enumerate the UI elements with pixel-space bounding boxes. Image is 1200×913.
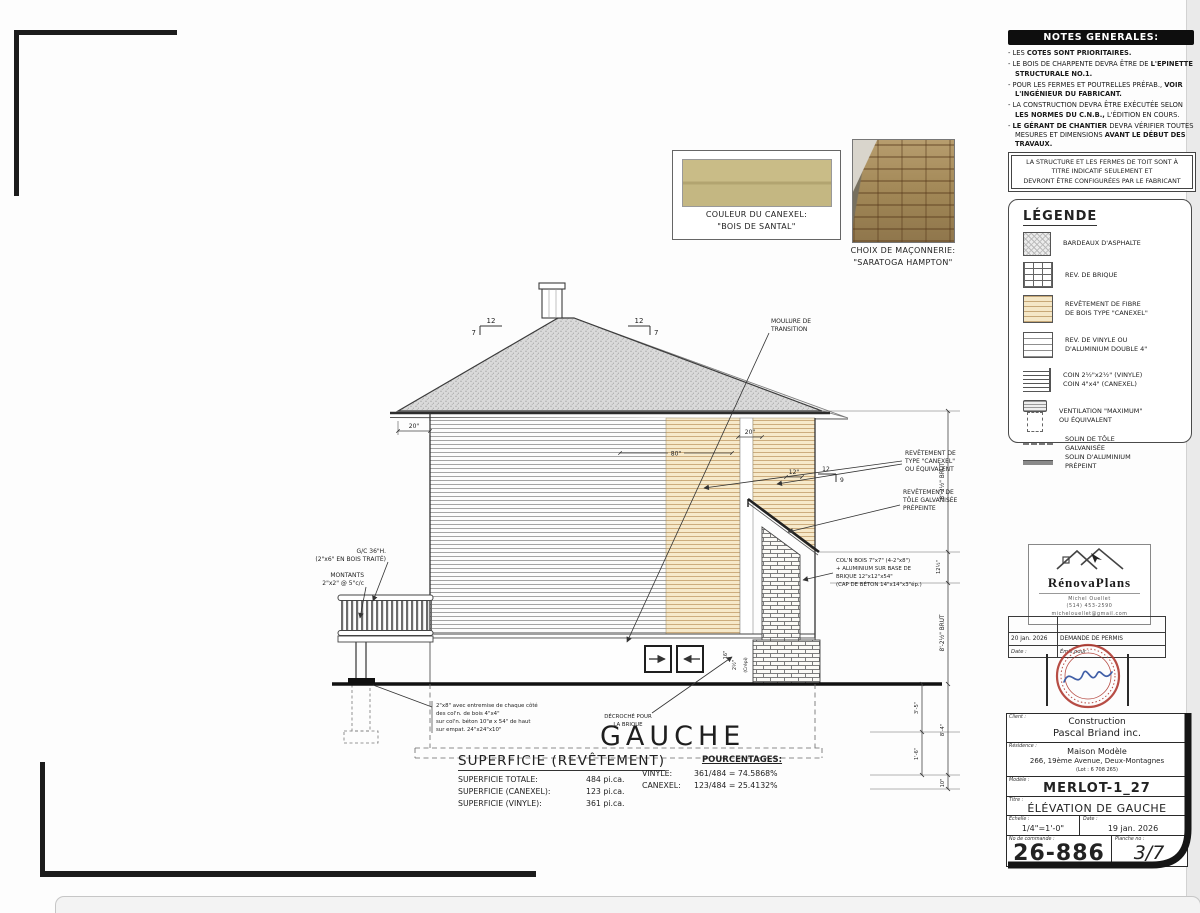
svg-text:sur col'n. béton 10"ø x 54" de: sur col'n. béton 10"ø x 54" de haut <box>436 718 531 725</box>
svg-text:12½": 12½" <box>935 560 942 574</box>
svg-text:REVÊTEMENT DE: REVÊTEMENT DE <box>905 449 956 457</box>
svg-text:REVÊTEMENT DE: REVÊTEMENT DE <box>903 488 954 496</box>
legend-item-dash: SOLIN DE TÔLEGALVANISÉE <box>1023 435 1191 453</box>
legend-item-corner: COIN 2½"x2½" (VINYLE)COIN 4"x4" (CANEXEL… <box>1023 363 1191 397</box>
svg-text:(CAP DE BÉTON 14"x14"x3"ép.): (CAP DE BÉTON 14"x14"x3"ép.) <box>836 580 922 588</box>
legend-item-brick: REV. DE BRIQUE <box>1023 259 1191 291</box>
renovaplans-name: RénovaPlans <box>1029 575 1150 591</box>
cursor-arrow-icon <box>1091 553 1102 563</box>
svg-text:20": 20" <box>745 429 756 436</box>
svg-text:7: 7 <box>472 329 476 337</box>
professional-stamp <box>1050 640 1126 712</box>
data-row: SUPERFICIE (VINYLE):361 pi.ca. <box>458 798 708 810</box>
svg-text:2½": 2½" <box>731 660 738 670</box>
canexel-color-swatch <box>682 159 832 207</box>
svg-text:(Crépi): (Crépi) <box>742 657 749 673</box>
legend-label: VENTILATION "MAXIMUM"OU ÉQUIVALENT <box>1059 407 1142 425</box>
horizontal-scrollbar[interactable] <box>55 896 1200 913</box>
svg-text:8'-4": 8'-4" <box>940 724 946 736</box>
deck <box>338 595 433 743</box>
svg-text:DÉCROCHÉ POUR: DÉCROCHÉ POUR <box>604 712 652 720</box>
renovaplans-roof-icon <box>1055 545 1125 571</box>
svg-text:3'-5": 3'-5" <box>914 702 920 714</box>
legend-item-canexel: REVÊTEMENT DE FIBREDE BOIS TYPE "CANEXEL… <box>1023 291 1191 327</box>
indicative-note-line: LA STRUCTURE ET LES FERMES DE TOIT SONT … <box>1013 158 1191 167</box>
svg-text:MOULURE DE: MOULURE DE <box>771 318 811 325</box>
legend-label: SOLIN D'ALUMINIUMPRÉPEINT <box>1065 453 1131 471</box>
renovaplans-contact-1: (514) 453-2590 <box>1029 603 1150 610</box>
vent-swatch-icon <box>1023 400 1047 432</box>
corner-mark-top-left <box>14 30 177 35</box>
superficie-title: SUPERFICIE (REVÊTEMENT) <box>458 753 665 771</box>
masonry-caption-1: CHOIX DE MAÇONNERIE: <box>818 246 988 255</box>
note-item: LES COTES SONT PRIORITAIRES. <box>1008 49 1194 58</box>
svg-text:2"x2" @ 5"c/c: 2"x2" @ 5"c/c <box>322 580 364 587</box>
svg-text:1'-6": 1'-6" <box>914 748 920 760</box>
pourcentages-title: POURCENTAGES: <box>642 755 842 765</box>
solid-swatch-icon <box>1023 460 1053 465</box>
svg-text:9: 9 <box>840 477 844 484</box>
legend-label: REV. DE BRIQUE <box>1065 271 1117 280</box>
dash-swatch-icon <box>1023 443 1053 445</box>
legend-title: LÉGENDE <box>1023 209 1097 226</box>
legend-label: COIN 2½"x2½" (VINYLE)COIN 4"x4" (CANEXEL… <box>1063 371 1142 389</box>
legend-label: REVÊTEMENT DE FIBREDE BOIS TYPE "CANEXEL… <box>1065 300 1148 318</box>
corner-swatch-icon <box>1023 368 1051 392</box>
svg-text:G/C 36"H.: G/C 36"H. <box>357 548 387 555</box>
svg-text:12: 12 <box>635 317 644 325</box>
seal-frame-left <box>1046 654 1048 706</box>
note-item: POUR LES FERMES ET POUTRELLES PRÉFAB., V… <box>1008 81 1194 100</box>
svg-text:TÔLE GALVANISÉE: TÔLE GALVANISÉE <box>902 496 958 504</box>
legend-panel: LÉGENDE BARDEAUX D'ASPHALTEREV. DE BRIQU… <box>1008 199 1192 443</box>
pourcentages-rows: VINYLE:361/484 = 74.5868%CANEXEL:123/484… <box>642 768 842 793</box>
pourcentages-block: POURCENTAGES: VINYLE:361/484 = 74.5868%C… <box>642 755 842 793</box>
masonry-photo <box>852 139 955 243</box>
legend-item-asphalt: BARDEAUX D'ASPHALTE <box>1023 228 1191 259</box>
note-item: LE GÉRANT DE CHANTIER DEVRA VÉRIFIER TOU… <box>1008 122 1194 150</box>
legend-label: REV. DE VINYLE OUD'ALUMINIUM DOUBLE 4" <box>1065 336 1147 354</box>
svg-text:20": 20" <box>409 423 420 430</box>
svg-text:TYPE "CANEXEL": TYPE "CANEXEL" <box>904 458 955 465</box>
svg-text:PRÉPEINTE: PRÉPEINTE <box>903 504 936 512</box>
svg-text:2"x8" avec entremise de chaque: 2"x8" avec entremise de chaque côté <box>436 702 538 709</box>
corner-mark-bottom-left <box>40 871 536 877</box>
canexel-color-swatch-box: COULEUR DU CANEXEL: "BOIS DE SANTAL" <box>672 150 841 240</box>
notes-header: NOTES GENERALES: <box>1008 30 1194 45</box>
brick-base <box>753 640 820 684</box>
corner-trim <box>740 418 753 634</box>
chimney <box>542 289 562 318</box>
plan-sheet: { "notes": { "header": "NOTES GENERALES:… <box>0 0 1200 913</box>
svg-text:8'-2½" BRUT: 8'-2½" BRUT <box>939 614 946 651</box>
seal-frame-right <box>1127 654 1129 706</box>
legend-label: BARDEAUX D'ASPHALTE <box>1063 239 1141 248</box>
roof <box>390 283 848 419</box>
svg-text:des col'n. de bois 4"x4": des col'n. de bois 4"x4" <box>436 711 500 717</box>
svg-text:80": 80" <box>671 451 682 458</box>
svg-text:COL'N BOIS 7"x7" (4-2"x8"): COL'N BOIS 7"x7" (4-2"x8") <box>836 558 910 564</box>
svg-text:BRIQUE 12"x12"x54": BRIQUE 12"x12"x54" <box>836 574 893 580</box>
data-row: CANEXEL:123/484 = 25.4132% <box>642 780 842 792</box>
legend-item-vent: VENTILATION "MAXIMUM"OU ÉQUIVALENT <box>1023 397 1191 435</box>
corner-mark-top-left-vertical <box>14 30 19 196</box>
svg-text:sur empat. 24"x24"x10": sur empat. 24"x24"x10" <box>436 727 501 733</box>
data-row: VINYLE:361/484 = 74.5868% <box>642 768 842 780</box>
asphalt-swatch-icon <box>1023 232 1051 256</box>
general-notes-panel: NOTES GENERALES: LES COTES SONT PRIORITA… <box>1008 30 1194 172</box>
railing-balusters <box>340 600 432 631</box>
brick-swatch-icon <box>1023 262 1053 288</box>
canexel-caption-1: COULEUR DU CANEXEL: <box>673 210 840 219</box>
vinyl-siding <box>430 418 666 634</box>
legend-item-vinyl: REV. DE VINYLE OUD'ALUMINIUM DOUBLE 4" <box>1023 327 1191 363</box>
svg-text:MONTANTS: MONTANTS <box>330 572 364 579</box>
canexel-caption-2: "BOIS DE SANTAL" <box>673 222 840 231</box>
svg-text:12: 12 <box>487 317 496 325</box>
legend-items: BARDEAUX D'ASPHALTEREV. DE BRIQUEREVÊTEM… <box>1023 228 1191 471</box>
vinyl-swatch-icon <box>1023 332 1053 358</box>
svg-text:7: 7 <box>654 329 658 337</box>
sheet-border-corner <box>1000 711 1196 873</box>
corner-mark-bottom-left-vertical <box>40 762 45 877</box>
note-item: LE BOIS DE CHARPENTE DEVRA ÊTRE DE L'EPI… <box>1008 60 1194 79</box>
svg-text:TRANSITION: TRANSITION <box>770 326 807 333</box>
svg-text:10": 10" <box>940 779 946 788</box>
legend-label: SOLIN DE TÔLEGALVANISÉE <box>1065 435 1115 453</box>
renovaplans-contact-0: Michel Ouellet <box>1029 596 1150 603</box>
indicative-note-line: DEVRONT ÊTRE CONFIGURÉES PAR LE FABRICAN… <box>1013 177 1191 186</box>
indicative-note-line: TITRE INDICATIF SEULEMENT ET <box>1013 167 1191 176</box>
canexel-swatch-icon <box>1023 295 1053 323</box>
note-item: LA CONSTRUCTION DEVRA ÊTRE EXÉCUTÉE SELO… <box>1008 101 1194 120</box>
structure-indicative-note: LA STRUCTURE ET LES FERMES DE TOIT SONT … <box>1008 152 1196 192</box>
elevation-title: GAUCHE <box>600 721 745 752</box>
svg-text:OU ÉQUIVALENT: OU ÉQUIVALENT <box>905 465 954 473</box>
svg-text:+ ALUMINIUM SUR BASE DE: + ALUMINIUM SUR BASE DE <box>836 566 912 572</box>
renovaplans-logo-box: RénovaPlans Michel Ouellet (514) 453-259… <box>1028 544 1151 625</box>
svg-text:(2"x6" EN BOIS TRAITÉ): (2"x6" EN BOIS TRAITÉ) <box>315 555 386 563</box>
legend-item-solid: SOLIN D'ALUMINIUMPRÉPEINT <box>1023 453 1191 471</box>
svg-text:16": 16" <box>723 651 729 660</box>
stamp-signature <box>1064 671 1112 682</box>
